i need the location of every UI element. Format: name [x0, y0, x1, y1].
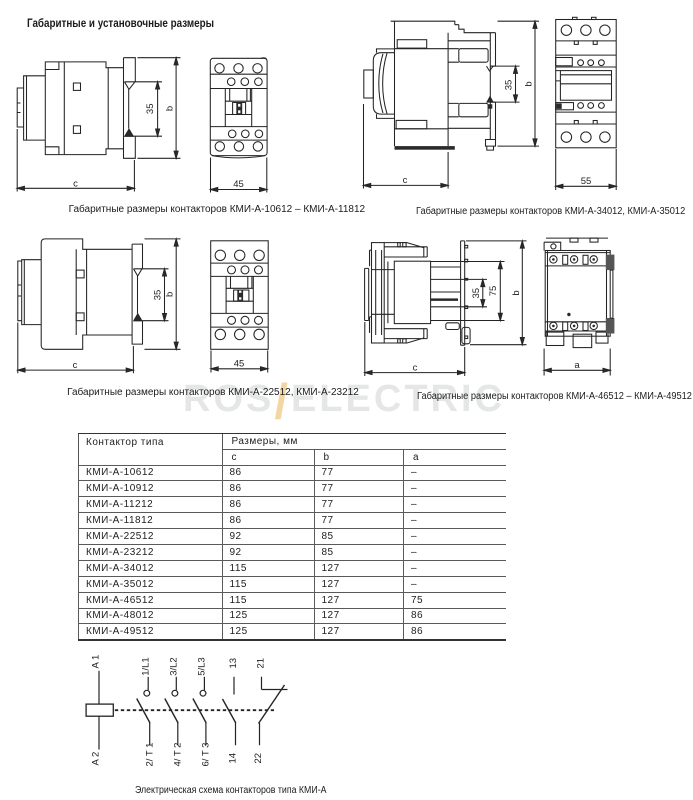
svg-text:6/ T 3: 6/ T 3: [201, 743, 212, 767]
svg-text:b: b: [524, 81, 535, 86]
svg-text:3/L2: 3/L2: [169, 657, 180, 676]
svg-text:b: b: [165, 292, 176, 297]
svg-text:c: c: [73, 360, 78, 371]
svg-text:45: 45: [234, 358, 245, 369]
svg-text:55: 55: [581, 176, 592, 187]
svg-text:35: 35: [471, 288, 482, 299]
svg-text:c: c: [73, 179, 78, 190]
svg-text:b: b: [511, 290, 522, 295]
svg-text:21: 21: [256, 658, 267, 669]
svg-text:c: c: [413, 362, 418, 373]
svg-text:22: 22: [253, 753, 264, 764]
svg-text:14: 14: [228, 753, 239, 764]
svg-text:5/L3: 5/L3: [197, 657, 208, 676]
svg-text:b: b: [165, 106, 176, 111]
svg-text:A 2: A 2: [91, 752, 102, 766]
svg-text:1/L1: 1/L1: [141, 657, 152, 676]
svg-text:a: a: [574, 360, 580, 371]
svg-text:75: 75: [488, 286, 499, 297]
svg-text:35: 35: [504, 80, 515, 91]
svg-text:A 1: A 1: [91, 655, 102, 669]
svg-text:4/ T 2: 4/ T 2: [173, 743, 184, 767]
svg-text:c: c: [403, 175, 408, 186]
svg-text:35: 35: [153, 290, 164, 301]
svg-text:35: 35: [145, 104, 156, 115]
svg-text:45: 45: [233, 179, 244, 190]
svg-text:2/ T 1: 2/ T 1: [145, 743, 156, 767]
svg-text:13: 13: [228, 658, 239, 669]
